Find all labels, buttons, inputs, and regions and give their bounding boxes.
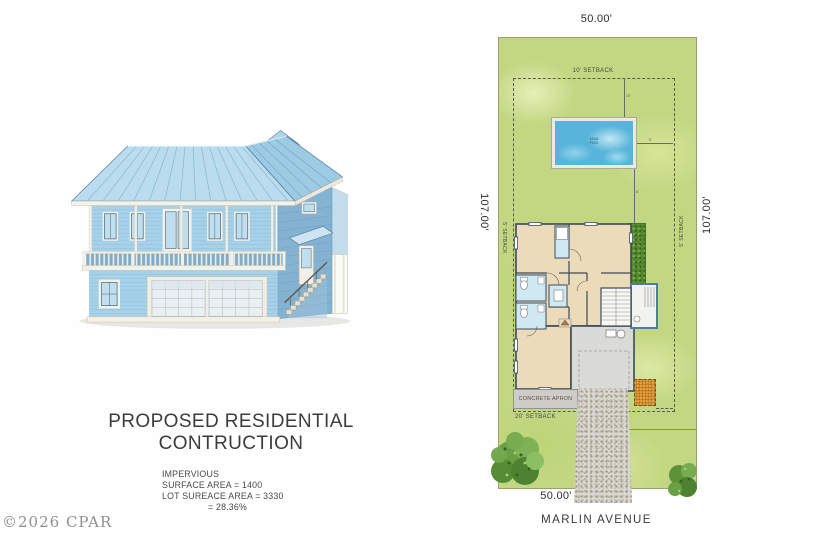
stats-heading: IMPERVIOUS [162,469,284,480]
rear-setback-label: 10' SETBACK [513,68,673,74]
balcony-window [130,212,145,241]
dim-line-driveway-to-edge [628,429,696,430]
living-room [516,326,571,389]
balcony-window [234,212,249,241]
impervious-stats: IMPERVIOUS SURFACE AREA = 1400 LOT SUREA… [162,469,284,513]
micro-dim-pool-to-house: 8' [636,190,639,194]
page-title: PROPOSED RESIDENTIAL CONTRUCTION [35,411,427,455]
micro-dim-rear-to-pool: 10' [626,94,630,98]
dim-line-pool-to-house [634,168,635,223]
lot-frontage-dim-top: 50.00' [498,13,695,25]
listing-exhibit: PROPOSED RESIDENTIAL CONTRUCTION IMPERVI… [0,0,840,560]
dashed-setback-segment [656,408,673,409]
dim-line-pool-to-side [636,143,673,144]
micro-dim-pool-to-side: 5' [649,138,652,142]
house-rendering-illustration [60,108,360,333]
stats-surface-area: SURFACE AREA = 1400 [162,480,284,491]
balcony-french-door [163,209,192,252]
first-floor-window [99,280,120,309]
lot-depth-dim-left: 107.00' [478,190,490,234]
bush-bottom-left [491,427,547,491]
balcony-window [103,212,118,241]
lot-depth-dim-right: 107.00' [701,193,713,237]
sand-pad [634,379,656,406]
copyright-watermark: ©2026 CPAR [2,513,112,531]
pool-size-label: 12x24 POOL [555,138,633,145]
house-floor-plan [507,221,662,396]
lot-parcel: 10' SETBACK 5' SETBACK 5' SETBACK 20' SE… [498,37,697,489]
house-roof [72,131,343,206]
concrete-apron: CONCRETE APRON [513,389,578,409]
dim-line-setback-to-pool [624,78,625,118]
balcony-railing [82,251,285,270]
gravel-driveway [574,389,632,503]
garage-doors [147,277,267,319]
bush-bottom-right [667,457,699,501]
house-second-floor [89,206,276,255]
street-name-label: MARLIN AVENUE [478,514,715,526]
right-setback-label: 5' SETBACK [679,209,685,253]
stats-ratio: = 28.36% [162,502,284,513]
house-first-floor [87,270,280,322]
front-setback-label: 20' SETBACK [515,414,575,420]
swimming-pool: 12x24 POOL [552,118,636,168]
stats-lot-area: LOT SUREACE AREA = 3330 [162,491,284,502]
concrete-apron-label: CONCRETE APRON [519,396,572,402]
balcony-window [207,212,222,241]
